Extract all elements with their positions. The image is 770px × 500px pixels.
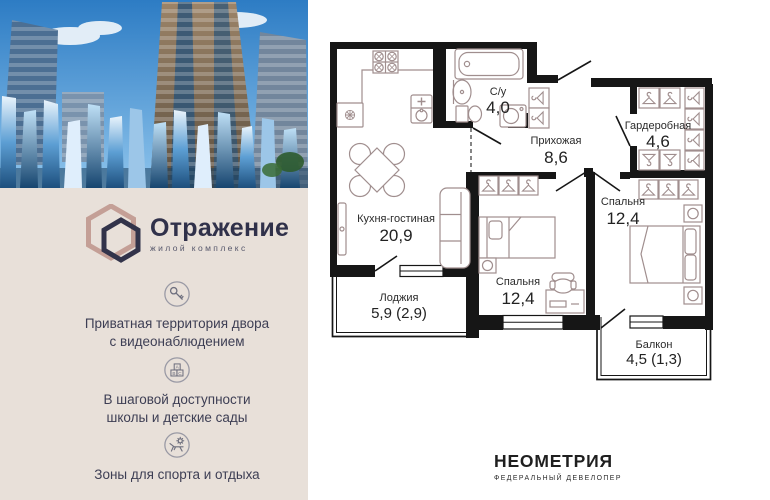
building-photo	[0, 0, 308, 188]
room-label-hallway: Прихожая	[531, 135, 582, 147]
svg-text:A: A	[176, 365, 180, 370]
room-area-wardrobe: 4,6	[646, 132, 670, 151]
washbasin	[453, 80, 471, 104]
room-label-loggia: Лоджия	[380, 292, 419, 304]
room-area-balcony: 4,5 (1,3)	[626, 351, 682, 368]
kitchen-sink	[411, 95, 432, 123]
feature-private-yard: Приватная территория двора с видеонаблюд…	[27, 280, 327, 351]
desk-and-chair	[546, 273, 584, 313]
feature-text: Зоны для спорта и отдыха	[94, 466, 259, 484]
room-area-hallway: 8,6	[544, 148, 568, 167]
room-label-bedroom-mid: Спальня	[496, 276, 540, 288]
nightstand-top	[684, 205, 702, 222]
toilet	[456, 106, 482, 122]
feature-text: В шаговой доступности	[103, 391, 250, 409]
complex-name: Отражение	[150, 215, 289, 241]
tv	[338, 203, 346, 255]
plan-furniture	[337, 49, 704, 313]
room-label-bedroom-right: Спальня	[601, 196, 645, 208]
flyer-canvas: Отражение жилой комплекс Приватная терри…	[0, 0, 770, 500]
bedside-unit	[479, 258, 496, 273]
room-area-bedroom-right: 12,4	[606, 209, 639, 228]
feature-text: школы и детские сады	[107, 409, 248, 427]
room-area-kitchen-living: 20,9	[379, 226, 412, 245]
lounge-sun-icon	[163, 431, 191, 459]
room-label-wardrobe: Гардеробная	[625, 120, 692, 132]
building-photo-art	[0, 0, 308, 188]
developer-tagline: ФЕДЕРАЛЬНЫЙ ДЕВЕЛОПЕР	[494, 475, 622, 482]
complex-logo: Отражение жилой комплекс	[84, 204, 289, 264]
room-area-bedroom-mid: 12,4	[501, 289, 534, 308]
svg-text:B: B	[172, 371, 175, 376]
single-bed	[479, 217, 555, 258]
double-bed	[630, 226, 700, 283]
nightstand-bottom	[684, 287, 702, 304]
hallway-closet	[529, 88, 549, 128]
stove	[373, 51, 398, 73]
feature-schools-nearby: ABC В шаговой доступности школы и детски…	[27, 356, 327, 427]
room-label-balcony: Балкон	[636, 339, 673, 351]
feature-sport-zones: Зоны для спорта и отдыха	[27, 431, 327, 484]
fridge	[337, 103, 363, 127]
svg-text:C: C	[178, 371, 182, 376]
feature-text: Приватная территория двора	[85, 315, 269, 333]
room-area-bathroom: 4,0	[486, 98, 510, 117]
developer-logo: НЕОМЕТРИЯ ФЕДЕРАЛЬНЫЙ ДЕВЕЛОПЕР	[494, 451, 622, 482]
brand-panel: Отражение жилой комплекс Приватная терри…	[0, 188, 308, 500]
abc-blocks-icon: ABC	[163, 356, 191, 384]
dining-table	[350, 144, 405, 197]
room-label-bathroom: С/у	[490, 86, 507, 98]
logo-hexagons-icon	[84, 204, 144, 264]
floor-plan: Кухня-гостиная 20,9 С/у 4,0 Прихожая 8,6…	[325, 35, 725, 395]
sofa	[440, 188, 470, 268]
room-area-loggia: 5,9 (2,9)	[371, 305, 427, 322]
bathtub	[455, 49, 523, 79]
complex-type: жилой комплекс	[150, 243, 289, 253]
feature-text: с видеонаблюдением	[109, 333, 244, 351]
developer-name: НЕОМЕТРИЯ	[494, 451, 622, 472]
room-label-kitchen-living: Кухня-гостиная	[357, 213, 435, 225]
key-icon	[163, 280, 191, 308]
